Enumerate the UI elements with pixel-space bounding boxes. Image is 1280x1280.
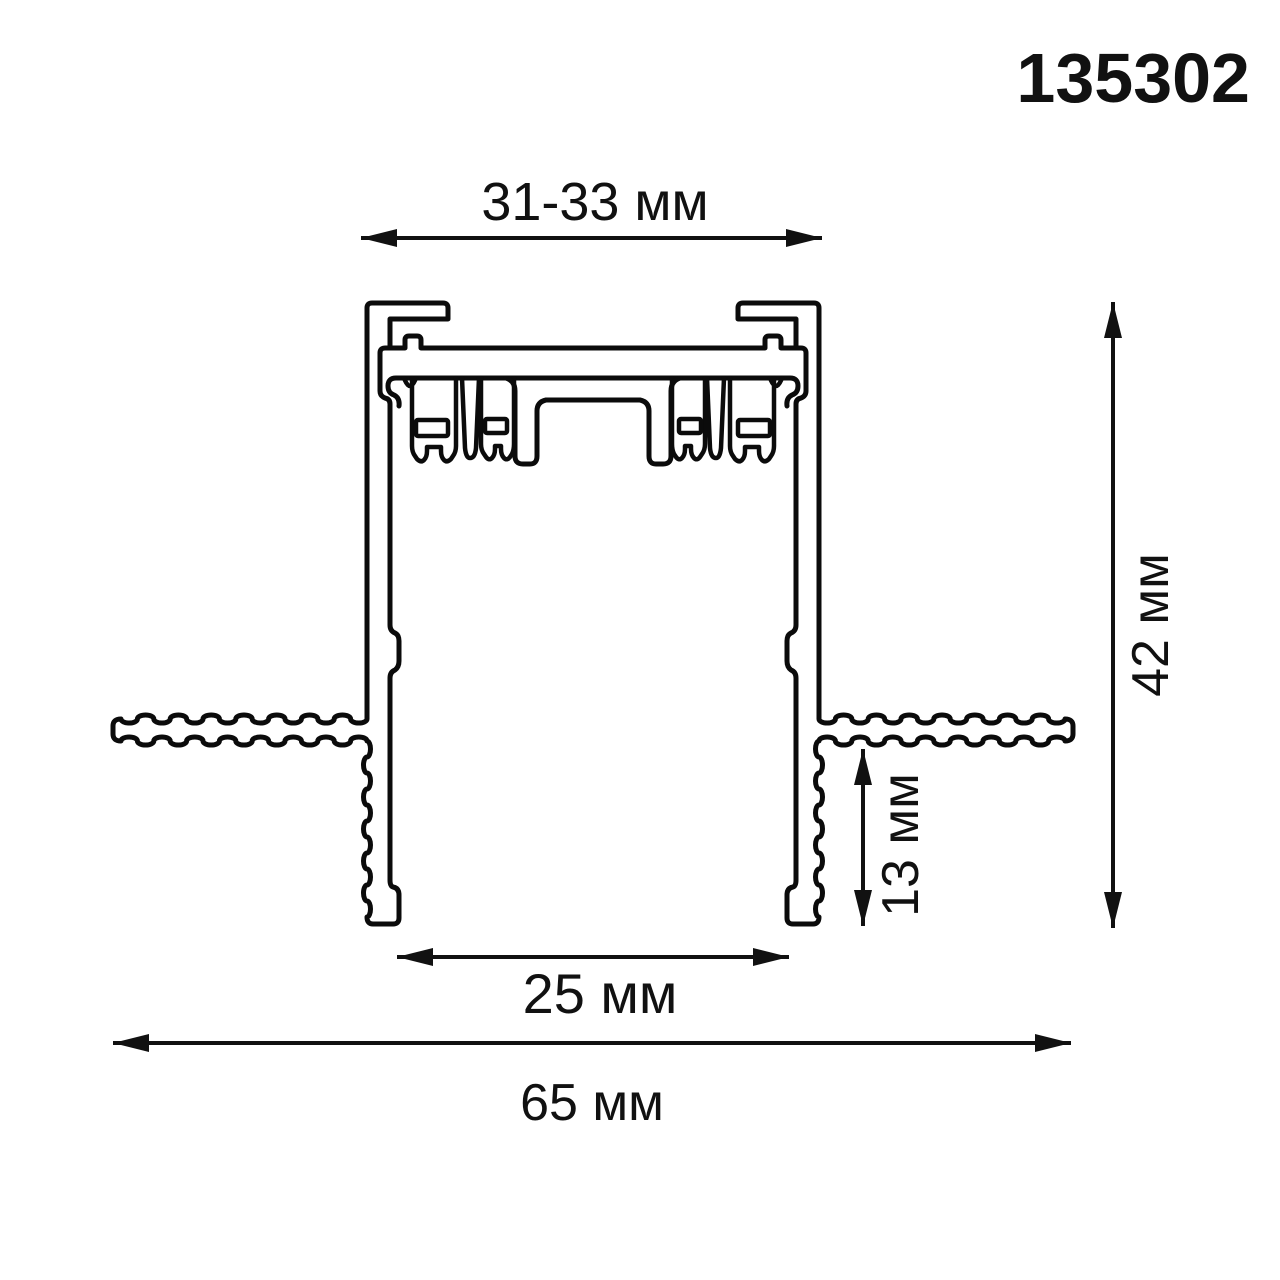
profile-cross-section-drawing: 135302 31-33 мм 42 мм 13 мм 25 мм 65 мм bbox=[0, 0, 1280, 1280]
dim-label-opening-width: 25 мм bbox=[523, 962, 678, 1025]
tooth-window bbox=[416, 420, 448, 436]
housing-outline-path bbox=[113, 303, 593, 924]
profile-right-half-mirror bbox=[593, 303, 1073, 924]
profile-left-half bbox=[113, 303, 593, 924]
dim-label-top-width: 31-33 мм bbox=[481, 172, 708, 232]
dim-label-total-width: 65 мм bbox=[520, 1074, 664, 1132]
product-code: 135302 bbox=[1016, 39, 1250, 117]
insert-channel-path bbox=[506, 378, 593, 464]
tooth-window bbox=[485, 419, 507, 433]
dim-label-total-height: 42 мм bbox=[1122, 553, 1180, 697]
dim-label-flange-height: 13 мм bbox=[872, 773, 930, 917]
technical-drawing-page: 135302 31-33 мм 42 мм 13 мм 25 мм 65 мм bbox=[0, 0, 1280, 1280]
